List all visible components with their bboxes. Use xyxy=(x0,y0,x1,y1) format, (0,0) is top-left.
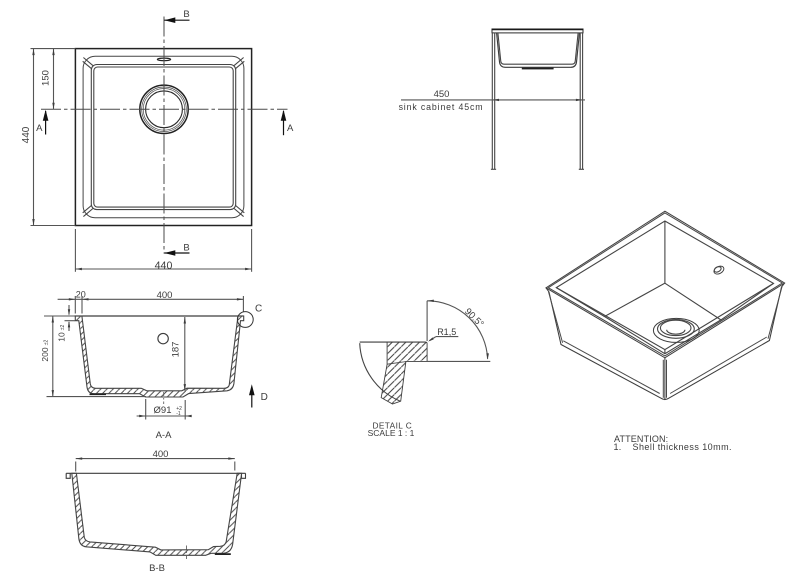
svg-text:±2: ±2 xyxy=(60,325,66,331)
svg-text:A: A xyxy=(287,123,294,134)
svg-text:A: A xyxy=(36,123,43,134)
svg-text:20: 20 xyxy=(76,290,86,300)
svg-text:Shell thickness 10mm.: Shell thickness 10mm. xyxy=(633,442,733,452)
svg-text:±2: ±2 xyxy=(43,340,49,346)
svg-text:440: 440 xyxy=(21,126,32,143)
svg-text:400: 400 xyxy=(157,290,173,301)
svg-text:10: 10 xyxy=(56,332,66,342)
svg-text:R1,5: R1,5 xyxy=(437,327,456,337)
svg-text:1.: 1. xyxy=(614,442,622,452)
svg-text:SCALE 1 : 1: SCALE 1 : 1 xyxy=(368,428,415,438)
svg-text:A-A: A-A xyxy=(156,430,173,441)
svg-text:440: 440 xyxy=(155,260,173,272)
svg-text:400: 400 xyxy=(153,449,169,460)
svg-text:C: C xyxy=(255,303,262,314)
svg-text:200: 200 xyxy=(40,347,50,361)
svg-text:150: 150 xyxy=(41,70,52,86)
svg-text:B: B xyxy=(183,242,189,253)
svg-text:sink cabinet 45cm: sink cabinet 45cm xyxy=(399,102,484,112)
svg-text:Ø91: Ø91 xyxy=(154,405,172,416)
svg-text:D: D xyxy=(261,392,268,403)
svg-text:B-B: B-B xyxy=(149,563,165,574)
svg-text:-1: -1 xyxy=(176,411,181,417)
svg-text:450: 450 xyxy=(434,89,450,100)
svg-text:187: 187 xyxy=(170,342,181,358)
svg-text:B: B xyxy=(183,9,189,20)
